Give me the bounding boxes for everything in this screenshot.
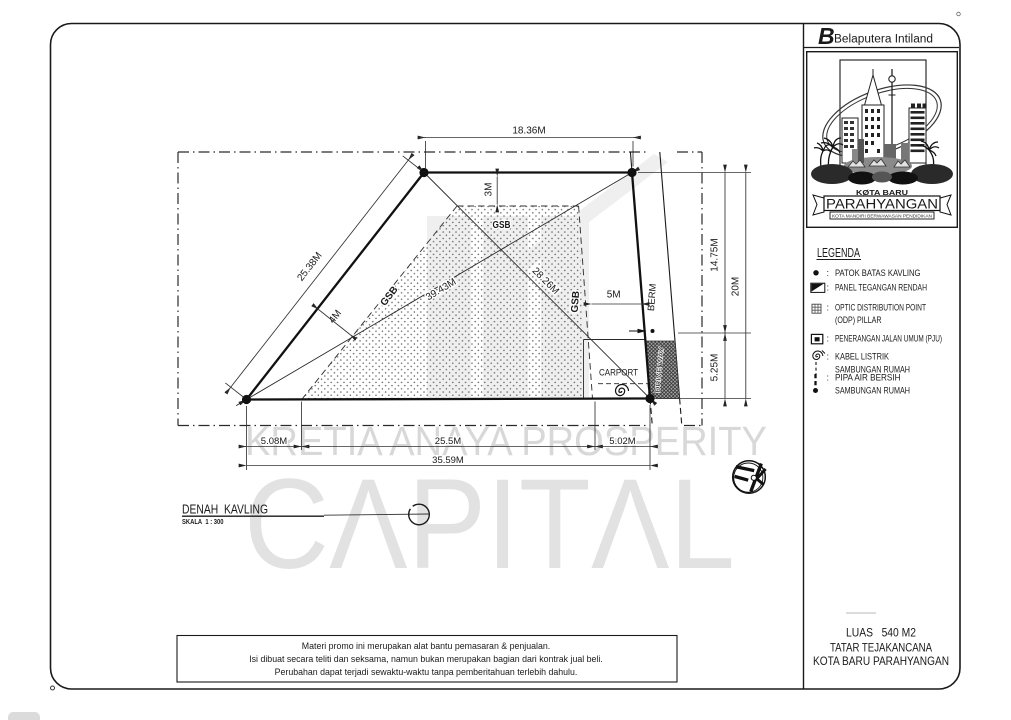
svg-text:14.75M: 14.75M	[710, 238, 721, 271]
svg-text:LUAS 540 M2: LUAS 540 M2	[846, 626, 916, 640]
svg-text:GSB: GSB	[493, 220, 511, 231]
svg-text:TATAR TEJAKANCANA: TATAR TEJAKANCANA	[830, 641, 932, 655]
svg-text:25.5M: 25.5M	[435, 436, 461, 447]
svg-text:18.36M: 18.36M	[512, 126, 545, 137]
svg-text:PIPA AIR BERSIH: PIPA AIR BERSIH	[835, 373, 901, 383]
svg-text:35.59M: 35.59M	[432, 455, 464, 466]
svg-text:Perubahan dapat terjadi sewakt: Perubahan dapat terjadi sewaktu-waktu ta…	[275, 667, 578, 677]
svg-text:CARPORT: CARPORT	[599, 368, 638, 379]
svg-text:5M: 5M	[607, 290, 621, 301]
svg-text:B: B	[818, 23, 835, 49]
svg-text:DENAH KAVLING: DENAH KAVLING	[182, 503, 268, 517]
svg-text:KOTA MANDIRI BERWAWASAN PENDID: KOTA MANDIRI BERWAWASAN PENDIDIKAN	[832, 214, 932, 219]
svg-text:PARAHYANGAN: PARAHYANGAN	[826, 196, 938, 212]
svg-text::: :	[827, 373, 830, 383]
svg-text:3M: 3M	[484, 183, 495, 197]
svg-text::: :	[827, 334, 830, 344]
svg-text:PENERANGAN JALAN UMUM (PJU): PENERANGAN JALAN UMUM (PJU)	[835, 334, 942, 344]
svg-text:PATOK BATAS KAVLING: PATOK BATAS KAVLING	[835, 268, 921, 278]
svg-text:Belaputera Intiland: Belaputera Intiland	[834, 34, 933, 46]
svg-text:OPTIC DISTRIBUTION POINT: OPTIC DISTRIBUTION POINT	[835, 303, 926, 313]
svg-text:5.02M: 5.02M	[609, 436, 635, 447]
svg-text:SKALA 1 : 300: SKALA 1 : 300	[182, 519, 224, 526]
svg-text:KABEL LISTRIK: KABEL LISTRIK	[835, 352, 889, 362]
svg-text:SAMBUNGAN RUMAH: SAMBUNGAN RUMAH	[835, 386, 910, 396]
svg-text:20M: 20M	[731, 277, 742, 296]
svg-text:BERM: BERM	[646, 283, 659, 311]
svg-text:25.38M: 25.38M	[295, 250, 324, 283]
svg-text::: :	[827, 303, 830, 313]
svg-text:GSB: GSB	[570, 291, 582, 313]
svg-text:LEGENDA: LEGENDA	[817, 246, 860, 260]
svg-text:PANEL TEGANGAN RENDAH: PANEL TEGANGAN RENDAH	[835, 283, 927, 293]
svg-text:(ODP) PILLAR: (ODP) PILLAR	[835, 315, 882, 325]
svg-text:Materi promo ini merupakan ala: Materi promo ini merupakan alat bantu pe…	[302, 641, 550, 651]
svg-text:5.08M: 5.08M	[261, 436, 287, 447]
svg-text:5.25M: 5.25M	[710, 354, 721, 382]
svg-text:Isi dibuat secara teliti dan s: Isi dibuat secara teliti dan seksama, na…	[249, 654, 603, 664]
svg-text:CΛPITΛL: CΛPITΛL	[244, 453, 735, 596]
svg-text:4M: 4M	[327, 308, 344, 326]
svg-text::: :	[827, 268, 830, 278]
svg-text::: :	[827, 352, 830, 362]
svg-text:KOTA BARU PARAHYANGAN: KOTA BARU PARAHYANGAN	[813, 654, 949, 668]
svg-text::: :	[827, 283, 830, 293]
